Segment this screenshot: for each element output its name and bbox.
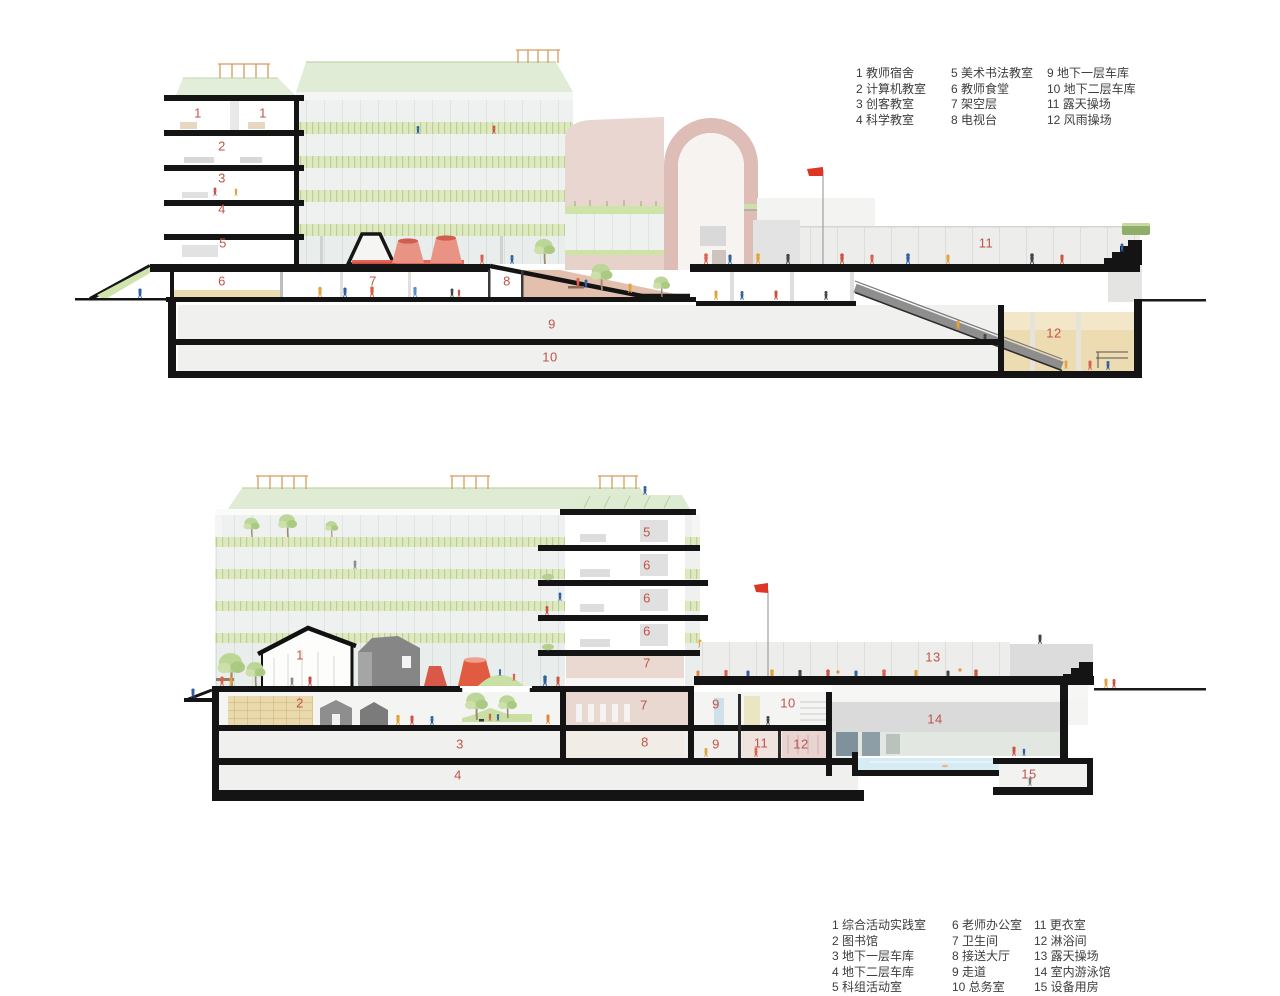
legend-column: 9 地下一层车库10 地下二层车库11 露天操场12 风雨操场 — [1047, 66, 1142, 128]
section-1-artwork — [0, 0, 1280, 430]
legend-bottom: 1 综合活动实践室2 图书馆3 地下一层车库4 地下二层车库5 科组活动室6 老… — [832, 918, 1154, 996]
legend-column: 1 综合活动实践室2 图书馆3 地下一层车库4 地下二层车库5 科组活动室 — [832, 918, 952, 996]
legend-top: 1 教师宿舍2 计算机教室3 创客教室4 科学教室5 美术书法教室6 教师食堂7… — [856, 66, 1142, 128]
deck-13-slab — [694, 676, 1094, 685]
playground-fence — [800, 226, 1140, 264]
legend-column: 11 更衣室12 淋浴间13 露天操场14 室内游泳馆15 设备用房 — [1034, 918, 1154, 996]
legend-item: 6 教师食堂 — [951, 82, 1047, 98]
legend-item: 7 卫生间 — [952, 934, 1034, 950]
red-flag — [807, 167, 823, 176]
equipment-room — [999, 764, 1087, 787]
deck-13-zone — [694, 583, 1206, 691]
legend-item: 11 露天操场 — [1047, 97, 1142, 113]
pool-hall-wall — [832, 702, 1060, 732]
legend-item: 8 电视台 — [951, 113, 1047, 129]
legend-item: 10 总务室 — [952, 980, 1034, 996]
legend-item: 14 室内游泳馆 — [1034, 965, 1154, 981]
legend-column: 5 美术书法教室6 教师食堂7 架空层8 电视台 — [951, 66, 1047, 128]
garage-b1 — [178, 305, 1000, 339]
planter-band — [565, 206, 664, 214]
legend-item: 6 老师办公室 — [952, 918, 1034, 934]
legend-item: 5 科组活动室 — [832, 980, 952, 996]
red-flag-2 — [754, 583, 768, 593]
section-2-artwork — [0, 430, 1280, 853]
legend-item: 11 更衣室 — [1034, 918, 1154, 934]
legend-item: 10 地下二层车库 — [1047, 82, 1142, 98]
legend-item: 7 架空层 — [951, 97, 1047, 113]
playground-deck-slab — [690, 264, 1140, 272]
dormitory-tower-section — [164, 64, 304, 297]
legend-item: 2 图书馆 — [832, 934, 952, 950]
legend-item: 12 风雨操场 — [1047, 113, 1142, 129]
garage-b2 — [178, 345, 1000, 371]
playground-backdrop — [753, 167, 1150, 302]
orange-roof-frame-2 — [256, 476, 638, 489]
legend-item: 1 教师宿舍 — [856, 66, 951, 82]
hedge — [1122, 225, 1150, 235]
legend-item: 9 走道 — [952, 965, 1034, 981]
legend-item: 2 计算机教室 — [856, 82, 951, 98]
tv-station-arch-building — [565, 117, 760, 270]
legend-column: 6 老师办公室7 卫生间8 接送大厅9 走道10 总务室 — [952, 918, 1034, 996]
legend-item: 4 科学教室 — [856, 113, 951, 129]
classroom-building-elevation — [296, 50, 573, 264]
basement-structure-2 — [212, 685, 1093, 801]
legend-item: 4 地下二层车库 — [832, 965, 952, 981]
library-shelves — [228, 696, 313, 725]
legend-item: 13 露天操场 — [1034, 949, 1154, 965]
section-drawing-2: 1234566677899101112131415 1 综合活动实践室2 图书馆… — [0, 430, 1280, 853]
legend-item: 5 美术书法教室 — [951, 66, 1047, 82]
legend-item: 3 地下一层车库 — [832, 949, 952, 965]
legend-item: 8 接送大厅 — [952, 949, 1034, 965]
legend-item: 1 综合活动实践室 — [832, 918, 952, 934]
orange-roof-frame — [516, 50, 560, 63]
section-drawing-1: 1123456789101112 1 教师宿舍2 计算机教室3 创客教室4 科学… — [0, 0, 1280, 430]
legend-item: 12 淋浴间 — [1034, 934, 1154, 950]
legend-item: 15 设备用房 — [1034, 980, 1154, 996]
basement-3-garage — [218, 765, 858, 790]
legend-column: 1 教师宿舍2 计算机教室3 创客教室4 科学教室 — [856, 66, 951, 128]
legend-item: 3 创客教室 — [856, 97, 951, 113]
legend-item: 9 地下一层车库 — [1047, 66, 1142, 82]
underground-structure — [168, 272, 1206, 378]
